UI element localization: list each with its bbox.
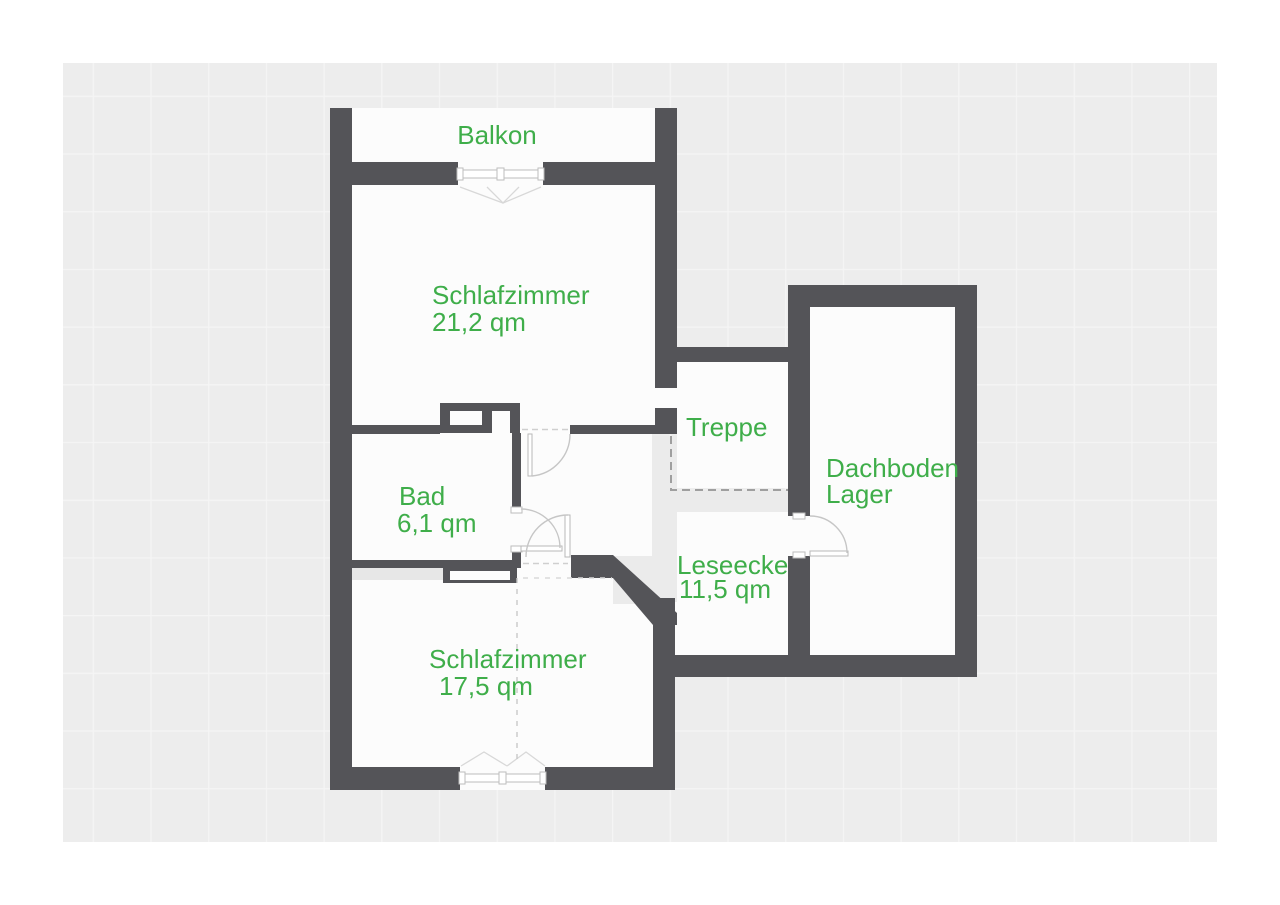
- balkon-window-tick-left: [457, 168, 463, 180]
- floorplan-drawing: Balkon Schlafzimmer 21,2 qm Treppe Dachb…: [0, 0, 1280, 905]
- floorplan-page: Balkon Schlafzimmer 21,2 qm Treppe Dachb…: [0, 0, 1280, 905]
- wall-flur-north: [570, 425, 670, 434]
- wall-bad-north: [352, 425, 440, 434]
- label-schlafzimmer-sued-area: 17,5 qm: [439, 671, 533, 701]
- wall-south-leseecke-dachboden: [675, 655, 977, 677]
- stair-landing-strip: [677, 490, 788, 512]
- label-balkon: Balkon: [457, 120, 537, 150]
- balkon-window-tick-right: [538, 168, 544, 180]
- wall-dachboden-west-upper: [788, 307, 810, 516]
- wall-balkon-left: [352, 162, 458, 185]
- door-sued-leaf: [565, 515, 570, 557]
- label-dachboden-line2: Lager: [826, 479, 893, 509]
- wall-dachboden-north: [788, 285, 977, 307]
- wall-balkon-right: [543, 162, 655, 185]
- knee-wall-strip: [352, 568, 443, 580]
- flur-floor: [521, 433, 652, 560]
- understair-strip: [652, 436, 677, 602]
- wall-opening-treppe: [655, 388, 677, 408]
- door-bad-jamb-top: [511, 507, 522, 513]
- door-bad-opening: [512, 510, 521, 548]
- wall-schlafzimmer-sued-north: [352, 560, 513, 568]
- label-treppe: Treppe: [686, 412, 767, 442]
- door-dachboden-jamb-bottom: [793, 552, 805, 558]
- door-dachboden-leaf: [810, 551, 848, 556]
- label-schlafzimmer-sued: Schlafzimmer: [429, 644, 587, 674]
- label-leseecke-area: 11,5 qm: [679, 574, 771, 604]
- chimney-cavity-right: [492, 411, 510, 433]
- wall-schlafzimmer-sued-north-east: [571, 555, 613, 578]
- label-bad: Bad: [399, 481, 445, 511]
- label-bad-area: 6,1 qm: [397, 508, 477, 538]
- chimney-cavity-left: [450, 411, 482, 425]
- label-schlafzimmer-nord: Schlafzimmer: [432, 280, 590, 310]
- door-bad-jamb-bottom: [511, 546, 522, 552]
- sued-window-tick-left: [459, 772, 465, 784]
- door-dachboden-jamb-top: [793, 513, 805, 519]
- label-schlafzimmer-nord-area: 21,2 qm: [432, 307, 526, 337]
- sued-window-tick-center: [499, 772, 506, 784]
- wall-treppe-west: [655, 108, 677, 388]
- door-dachboden-opening: [788, 516, 810, 556]
- sued-window-tick-right: [540, 772, 546, 784]
- wall-outer-bottom-west: [330, 767, 460, 790]
- wall-schlafzimmer-sued-east: [653, 598, 675, 790]
- wall-bad-east: [512, 433, 521, 510]
- wall-dachboden-west-lower: [788, 556, 810, 655]
- wall-outer-left: [330, 108, 352, 790]
- balkon-window-tick-center: [497, 168, 504, 180]
- door-nord-leaf: [528, 434, 532, 476]
- niche-cavity: [450, 571, 510, 580]
- wall-outer-bottom-east: [545, 767, 675, 790]
